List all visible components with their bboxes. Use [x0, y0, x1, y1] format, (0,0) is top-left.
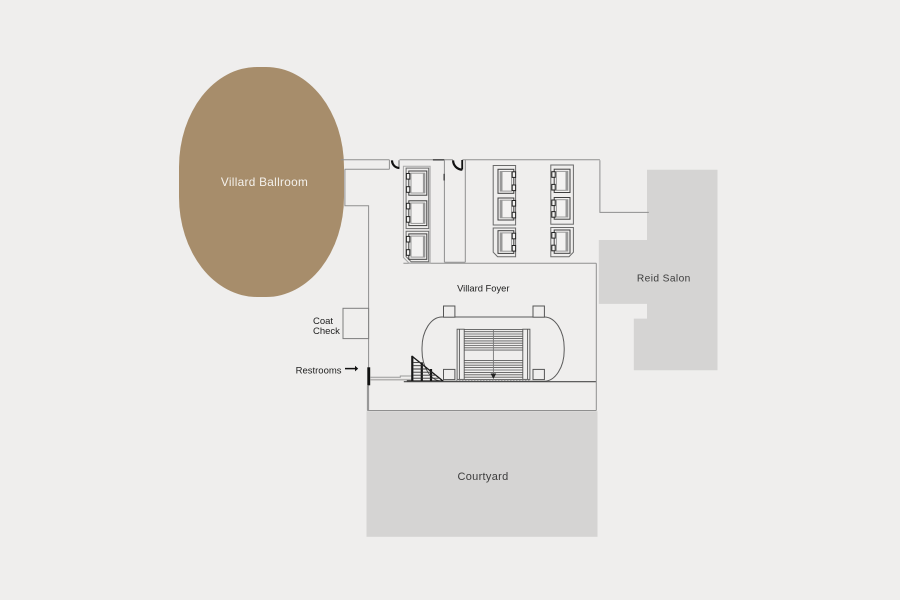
svg-text:Restrooms: Restrooms [296, 365, 342, 376]
svg-text:Villard Ballroom: Villard Ballroom [221, 175, 308, 189]
svg-text:Courtyard: Courtyard [458, 471, 509, 483]
svg-text:Villard Foyer: Villard Foyer [457, 283, 509, 294]
svg-text:Check: Check [313, 326, 340, 337]
svg-text:Reid Salon: Reid Salon [637, 274, 691, 285]
